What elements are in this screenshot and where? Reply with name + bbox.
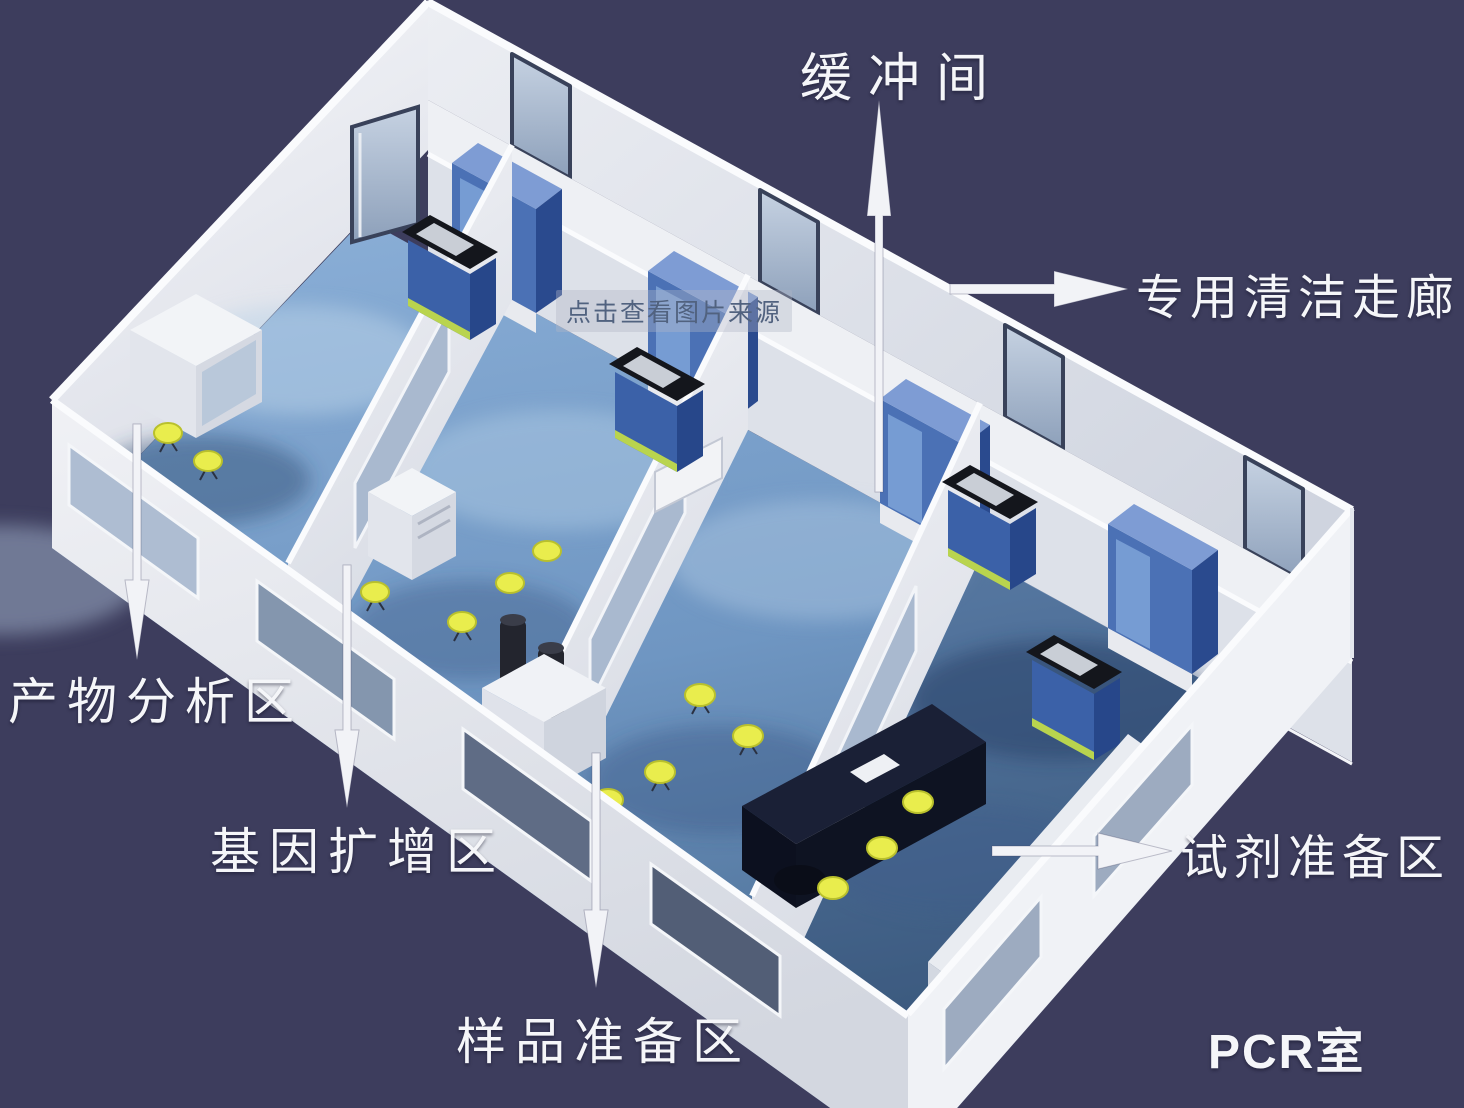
sample-preparation-label: 样品准备区	[456, 1002, 751, 1074]
image-source-watermark[interactable]: 点击查看图片来源	[556, 290, 792, 332]
room1-back-door	[352, 107, 418, 242]
buffer-room-label: 缓冲间	[800, 36, 1004, 111]
stool-icon	[496, 573, 524, 593]
pcr-room-caption: PCR室	[1208, 1012, 1365, 1082]
stool-icon	[818, 877, 848, 899]
stool-icon	[903, 791, 933, 813]
pcr-lab-diagram: 缓冲间 专用清洁走廊 产物分析区 基因扩增区 样品准备区 试剂准备区 PCR室 …	[0, 0, 1464, 1108]
product-analysis-label: 产物分析区	[8, 662, 303, 734]
stool-icon	[867, 837, 897, 859]
building-3d-render	[0, 0, 1464, 1108]
reagent-preparation-label: 试剂准备区	[1180, 818, 1450, 888]
gene-amplification-label: 基因扩增区	[210, 812, 505, 884]
stool-icon	[533, 541, 561, 561]
clean-corridor-label: 专用清洁走廊	[1136, 258, 1460, 328]
